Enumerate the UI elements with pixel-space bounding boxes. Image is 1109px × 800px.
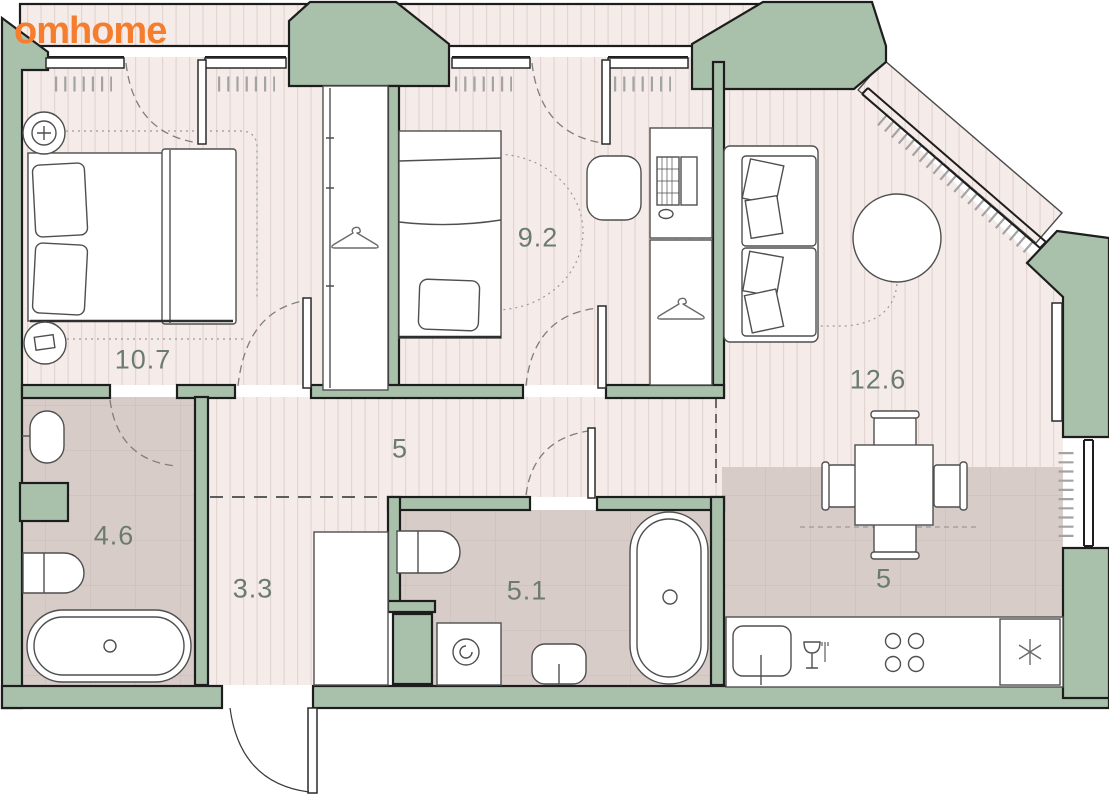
room-label-corridor: 5 xyxy=(392,434,408,465)
kitchen-sink xyxy=(733,626,791,685)
nightstand-2 xyxy=(24,322,66,364)
bedroom2-door xyxy=(598,306,606,388)
bedroom-door xyxy=(303,298,311,388)
room-label-bathroom: 4.6 xyxy=(94,521,135,552)
duct-shaft xyxy=(20,483,68,521)
bathtub xyxy=(27,610,191,682)
single-bed xyxy=(399,131,501,338)
dining-chair xyxy=(874,417,916,447)
room-label-kitchen: 5 xyxy=(876,564,892,595)
room-label-living: 12.6 xyxy=(850,365,907,396)
sofa xyxy=(724,146,818,342)
dining-chair xyxy=(874,523,916,553)
side-window xyxy=(1052,303,1062,421)
dining-chair xyxy=(828,465,856,507)
toilet-2 xyxy=(532,644,586,684)
sink xyxy=(23,553,84,593)
mouse-icon xyxy=(659,210,673,219)
room-label-hallway: 3.3 xyxy=(233,574,274,605)
desk xyxy=(650,128,712,238)
brand-logo: omhome xyxy=(14,10,166,53)
floorplan-page: omhome 10.7 9.2 12.6 5 4.6 3.3 5.1 5 xyxy=(0,0,1109,800)
dining-chair xyxy=(934,465,962,507)
washing-machine xyxy=(437,623,501,685)
wardrobe-2 xyxy=(650,240,712,385)
hallway-cabinet xyxy=(314,532,388,685)
double-bed xyxy=(28,149,236,324)
fridge xyxy=(1000,619,1060,685)
entrance-door xyxy=(308,708,317,793)
bathtub-2 xyxy=(630,512,708,684)
entrance-door-swing xyxy=(230,708,309,792)
corridor-floor xyxy=(208,397,724,497)
balcony-door-2 xyxy=(602,60,610,144)
room-label-bedroom: 10.7 xyxy=(115,345,172,376)
duct-shaft-2 xyxy=(393,614,432,684)
kitchen-counter xyxy=(726,617,1063,687)
round-table xyxy=(853,194,941,282)
bathroom2-door xyxy=(588,428,595,498)
kitchen-window xyxy=(1084,440,1093,546)
wardrobe xyxy=(323,86,388,390)
room-label-bathroom-2: 5.1 xyxy=(507,576,548,607)
nightstand xyxy=(23,112,65,154)
balcony-door xyxy=(198,60,206,144)
desk-chair xyxy=(587,156,641,220)
floorplan-drawing xyxy=(0,0,1109,800)
sink-2 xyxy=(397,531,460,573)
room-label-bedroom-2: 9.2 xyxy=(518,223,559,254)
